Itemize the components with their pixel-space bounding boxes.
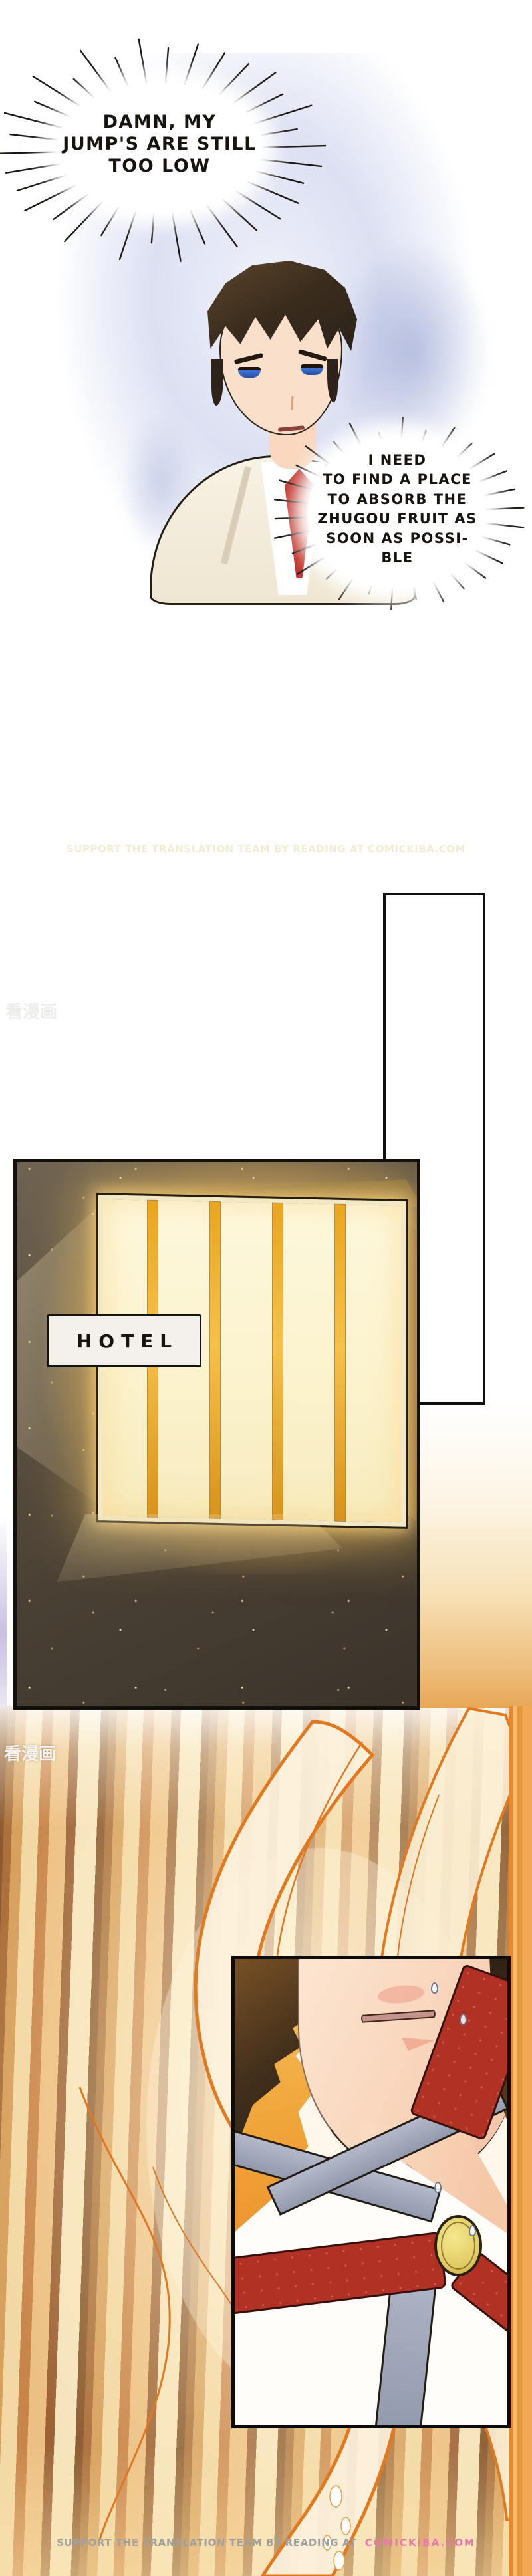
hotel-sign-label: HOTEL [70, 1330, 178, 1352]
speech-bubble-2-text: I NEED TO FIND A PLACE TO ABSORB THE ZHU… [303, 451, 492, 568]
hotel-sign: HOTEL [47, 1314, 201, 1367]
sweat-drop [460, 2014, 467, 2025]
hero-blue-glow-right [332, 239, 492, 465]
character-eye-right [301, 364, 323, 375]
comic-page: DAMN, MY JUMP'S ARE STILL TOO LOW I NEED… [0, 0, 532, 2576]
window-mullion [210, 1202, 220, 1518]
character-eye-left [238, 367, 261, 378]
faint-translation-note: SUPPORT THE TRANSLATION TEAM BY READING … [0, 843, 532, 855]
bubble1-line: DAMN, MY [60, 112, 259, 134]
bubble1-line: TOO LOW [60, 156, 259, 177]
sweat-drop [431, 1982, 438, 1994]
cn-watermark-top: 看漫画 [5, 998, 57, 1023]
window-mullion [273, 1203, 283, 1520]
bubble2-line: TO ABSORB THE [303, 490, 492, 509]
bubble2-line: ZHUGOU FRUIT AS [303, 509, 492, 528]
bubble1-line: JUMP'S ARE STILL [60, 134, 259, 156]
cn-watermark-bottom: 看漫画 [4, 1740, 56, 1765]
sweat-drop [469, 2225, 476, 2236]
orange-streak-band [509, 1706, 532, 2576]
speech-bubble-1-text: DAMN, MY JUMP'S ARE STILL TOO LOW [60, 112, 259, 177]
sweat-drop [434, 2182, 442, 2193]
hotel-panel: HOTEL [13, 1159, 420, 1710]
closeup-panel [231, 1956, 511, 2428]
bubble2-line: I NEED [303, 451, 492, 470]
footer-site-name: COMICKIBA.COM [365, 2537, 475, 2549]
bubble2-line: SOON AS POSSI- [303, 529, 492, 548]
footer-credit: SUPPORT THE TRANSLATION TEAM BY READING … [0, 2537, 532, 2549]
gold-brooch [434, 2215, 482, 2276]
window-mullion [335, 1205, 345, 1521]
bubble2-line: BLE [303, 548, 492, 568]
bubble2-line: TO FIND A PLACE [303, 470, 492, 489]
character-sideburn-right [327, 359, 338, 402]
footer-credit-text: SUPPORT THE TRANSLATION TEAM BY READING … [57, 2537, 357, 2549]
